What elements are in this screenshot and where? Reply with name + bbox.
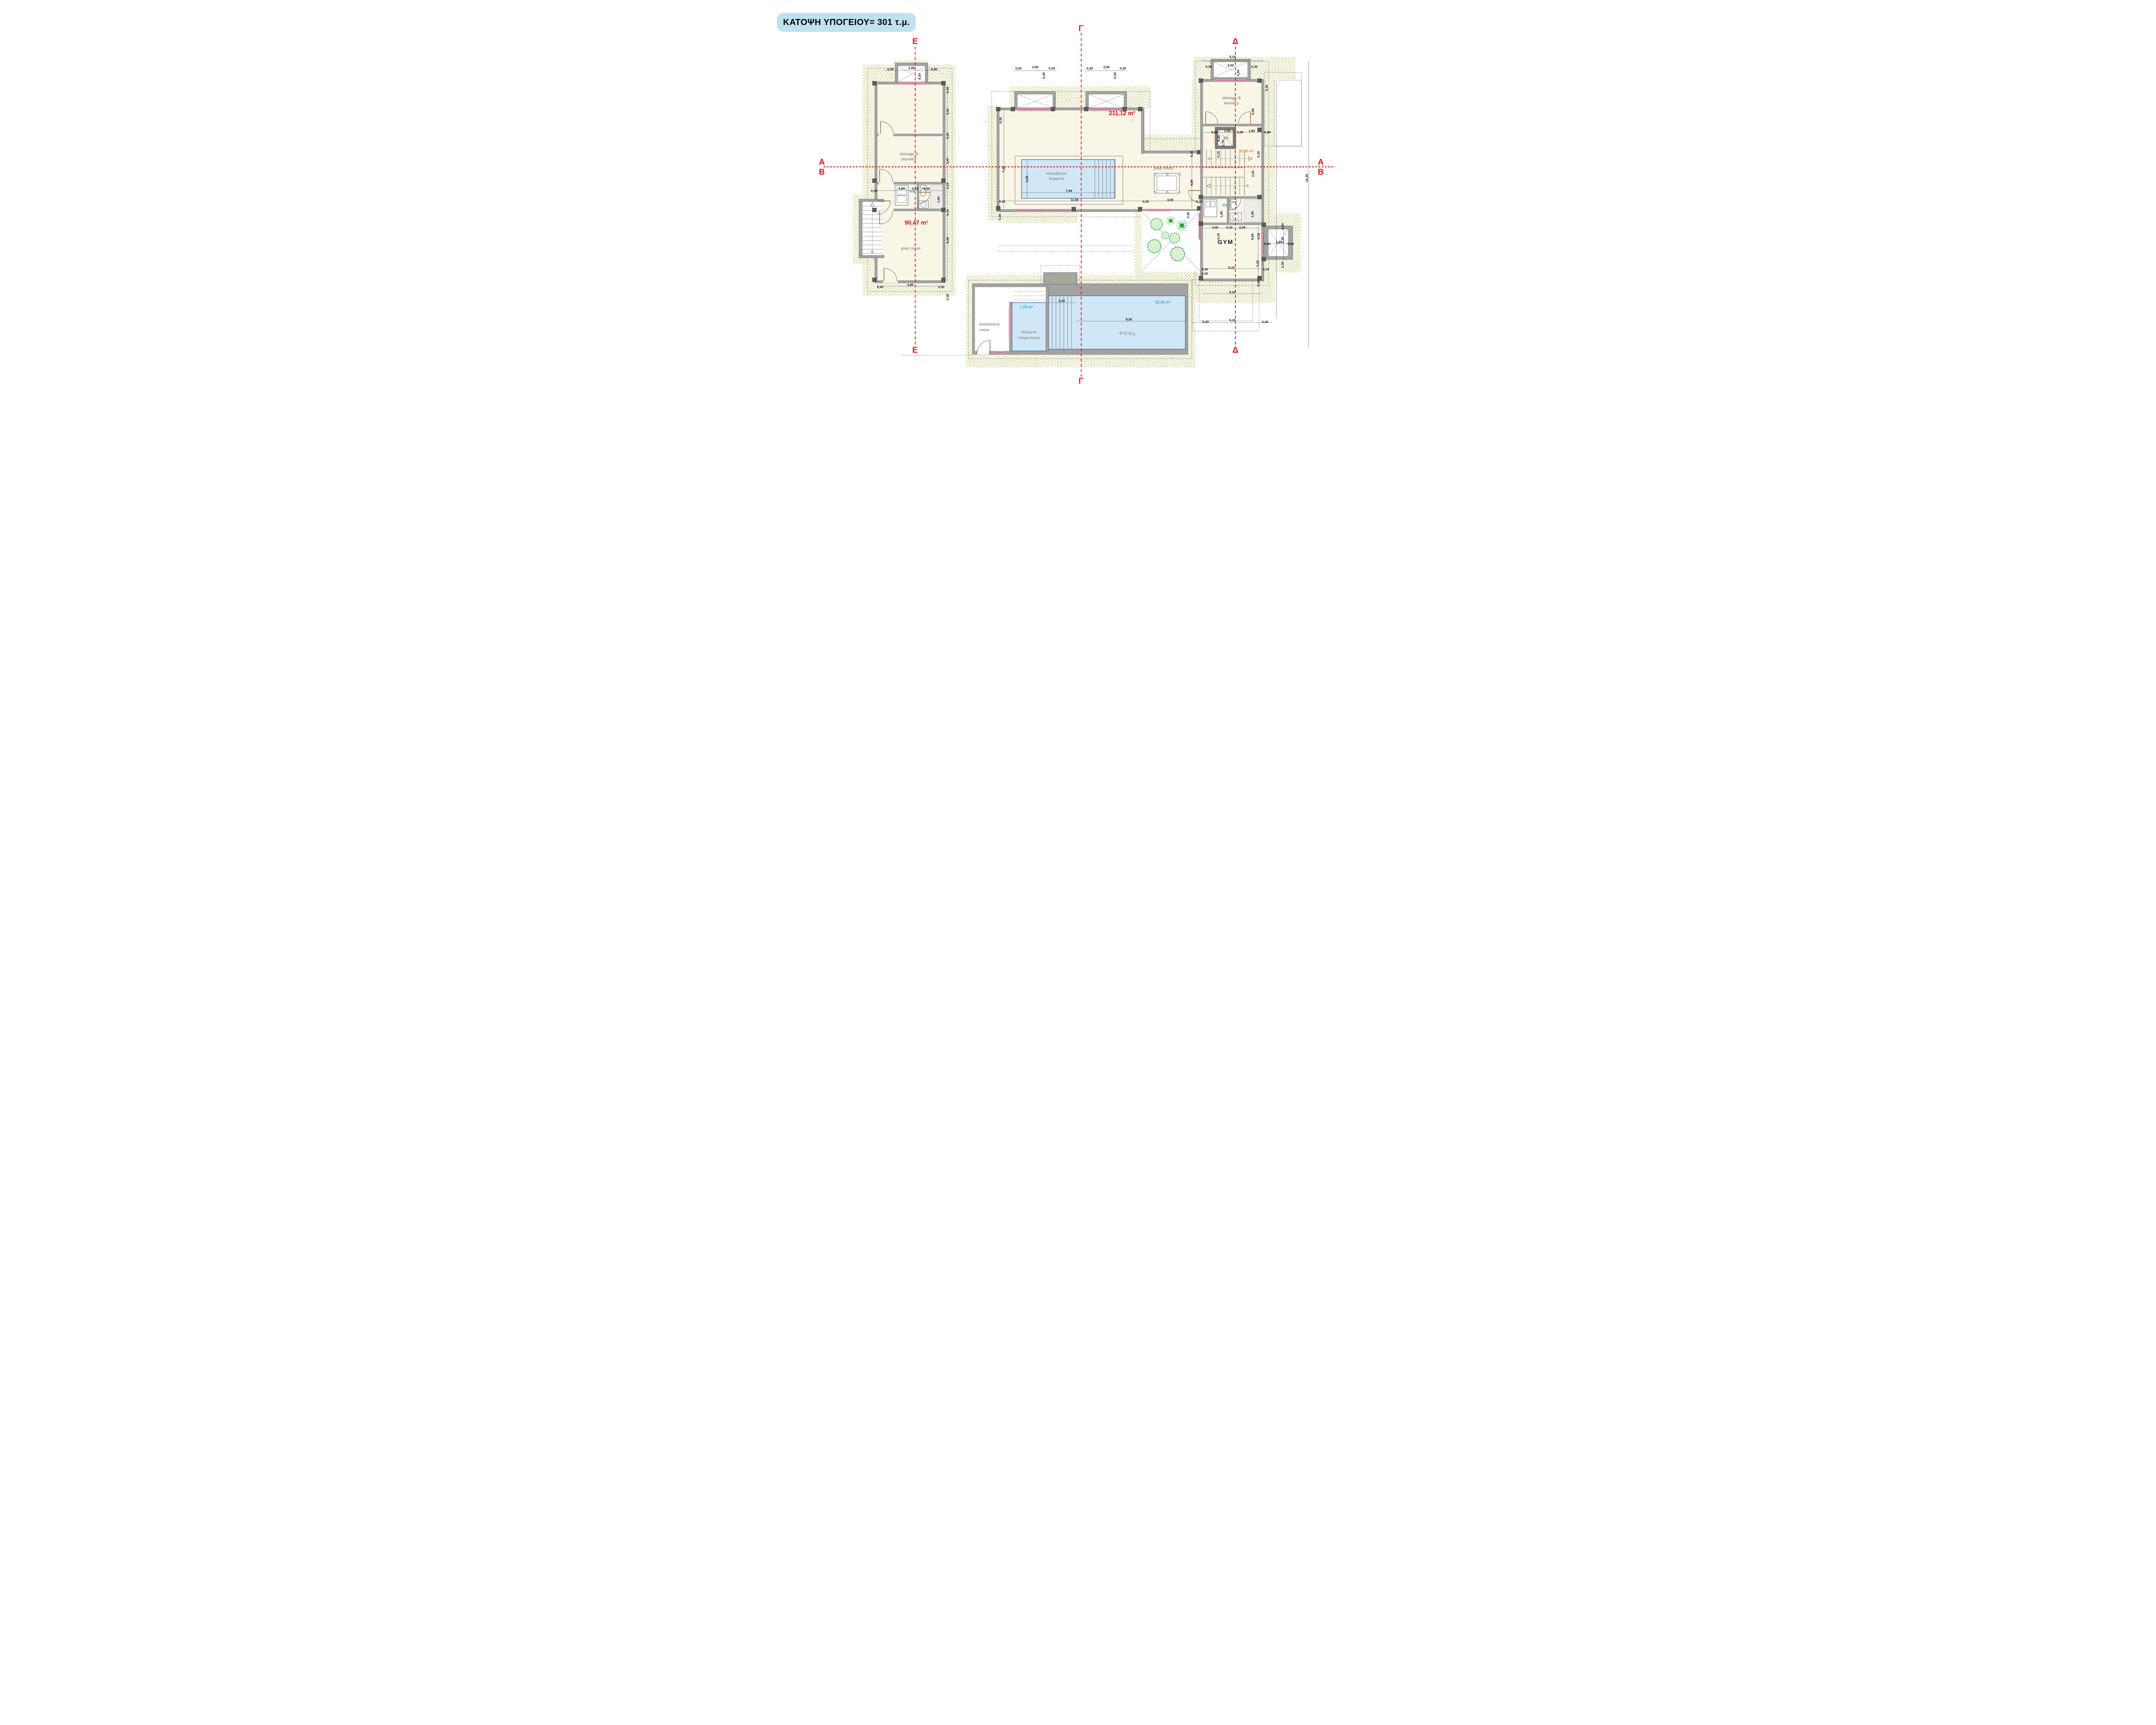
dimension-label: 0,30: [887, 67, 894, 71]
dimension-label: 0,30: [1251, 65, 1258, 69]
section-label-B-right: Β: [1318, 168, 1324, 177]
area-overflow-tank: 7,20 m²: [1019, 305, 1033, 309]
dimension-label: 1,75: [1221, 140, 1225, 147]
room-storage-laundry-right: storage &: [1222, 96, 1241, 100]
roomS-label: δεξαμενή: [1049, 177, 1064, 181]
dimension-label: 2,50: [1103, 65, 1110, 69]
dimension-label: 0,30: [1264, 130, 1271, 134]
dimension-label: 0,30: [1263, 267, 1269, 271]
dimension-label: 0,25: [1217, 135, 1221, 142]
overflow-tank: [1012, 303, 1046, 351]
dimension-label: 15,35: [1305, 174, 1309, 182]
dimension-label: 0,25: [1237, 130, 1244, 134]
dimension-label: 0,10: [1226, 225, 1233, 229]
pool-shaft-bump: [1044, 272, 1077, 285]
room-play-center: play room: [1153, 166, 1173, 171]
dimension-label: 2,10: [1059, 299, 1065, 303]
billiard-table: [1154, 173, 1180, 193]
dimension-label: 5,10: [1228, 266, 1235, 269]
dimension-label: 2,50: [909, 66, 915, 70]
dimension-label: 0,30: [871, 189, 877, 193]
blueprint-page: ΚΑΤΟΨΗ ΥΠΟΓΕΙΟΥ= 301 τ.μ.: [755, 0, 1401, 431]
dimension-label: 2,00: [1239, 225, 1246, 229]
dimension-label: 0,15: [1216, 151, 1220, 158]
dimension-label: 5,65: [1250, 234, 1254, 240]
toilet: [1231, 200, 1237, 202]
dimension-label: 11,55: [1071, 198, 1078, 202]
dimension-label: 0,15: [1216, 233, 1220, 240]
room-pool: POOL: [1119, 331, 1136, 336]
dimension-label: 0,30: [1264, 242, 1271, 246]
dimension-label: 0,30: [999, 117, 1003, 124]
section-label-E-bottom: Ε: [912, 346, 918, 355]
dimension-label: 0,30: [1281, 262, 1285, 268]
dimension-label: 5,10: [1229, 55, 1236, 59]
dimension-label: 0,10: [912, 187, 918, 191]
room-machinery: mashinery: [979, 322, 1000, 327]
machinery-room: [975, 287, 1009, 351]
dimension-label: 0,15: [1196, 200, 1203, 203]
exterior-staircase: [859, 199, 884, 258]
dimension-label: 1,80: [1219, 211, 1223, 218]
washer: [1230, 213, 1241, 221]
dimension-label: 0,30: [999, 200, 1006, 203]
dimension-label: 0,15: [1257, 151, 1260, 158]
section-label-D-top: Δ: [1232, 37, 1238, 46]
dimension-label: 9,20: [1126, 317, 1132, 321]
area-pool: 52,30 m²: [1155, 300, 1171, 304]
dimension-label: 3,62: [946, 109, 950, 115]
dimension-label: 0,30: [1206, 65, 1212, 69]
dimension-label: 0,30: [946, 87, 950, 94]
dimension-label: 3,00: [1025, 176, 1029, 182]
room-lift: lift: [1223, 136, 1228, 141]
dimension-label: 0,30: [998, 214, 1002, 220]
tree-icon: [1171, 247, 1185, 261]
dimension-label: 4,50: [1190, 180, 1194, 186]
roomS-label: υπερχειλισης: [1018, 336, 1040, 340]
dimension-label: 2,30: [1281, 237, 1285, 244]
dimension-label: 6,26: [946, 237, 950, 244]
dimension-label: 0,30: [1042, 72, 1046, 79]
tree-icon: [1166, 216, 1175, 225]
dimension-label: 7,30: [1002, 166, 1006, 173]
dimension-label: 5,10: [1229, 318, 1236, 322]
dimension-label: 0,30: [1049, 66, 1055, 70]
dimension-label: 0,30: [1186, 212, 1190, 219]
dimension-label: 1,80: [1249, 129, 1255, 133]
room-label: laundry: [902, 157, 917, 162]
dimension-label: 0,30: [1120, 66, 1126, 70]
title-box: ΚΑΤΟΨΗ ΥΠΟΓΕΙΟΥ= 301 τ.μ.: [777, 13, 916, 32]
dimension-label: 0,20: [1143, 200, 1149, 203]
dimension-label: 0,30: [1288, 242, 1294, 246]
room-storage-laundry-left: storage &: [899, 152, 918, 157]
psk-label-right: Ψ/Κ: [1222, 203, 1228, 207]
section-label-G-top: Γ: [1078, 24, 1084, 33]
dimension-label: 0,20: [1256, 260, 1260, 267]
area-stairs: 11,15 m²: [1239, 149, 1254, 153]
dimension-label: 4,95: [907, 283, 914, 287]
section-label-G-bottom: Γ: [1078, 377, 1084, 386]
room-label: laundry: [1224, 101, 1239, 106]
dimension-label: 0,15: [1257, 233, 1260, 240]
dimension-label: 0,30: [1113, 72, 1117, 79]
dimension-label: 3,00: [1212, 225, 1219, 229]
dimension-label: 0,30: [1190, 151, 1194, 157]
dimension-label: 2,00: [924, 187, 930, 191]
dimension-label: 0,30: [931, 67, 937, 71]
dimension-label: 1,80: [1250, 211, 1254, 218]
dimension-label: 0,30: [877, 285, 884, 289]
shower: [1244, 200, 1260, 222]
tree-icon: [1148, 240, 1161, 253]
dimension-label: 0,30: [1257, 280, 1260, 287]
room-swim-tank: κολυμβητική: [1046, 172, 1067, 175]
dimension-label: 0,30: [938, 285, 945, 289]
dimension-label: 4,55: [1167, 198, 1174, 202]
dimension-label: 0,30: [1202, 267, 1208, 271]
tree-icon: [1162, 232, 1169, 239]
courtyard: [1141, 209, 1201, 272]
floor-plan-canvas: ΕΕΓΓΔΔΑΒΑΒ90,47 m²211,12 m²11,15 m²7,20 …: [755, 0, 1401, 431]
dimension-label: 7,00: [1066, 189, 1072, 193]
dimension-label: 0,20: [1211, 130, 1218, 134]
page-title: ΚΑΤΟΨΗ ΥΠΟΓΕΙΟΥ= 301 τ.μ.: [783, 18, 910, 28]
indoor-swim-tank: [1015, 156, 1123, 204]
dimension-label: 0,15: [946, 183, 950, 189]
dimension-label: 0,20: [946, 133, 950, 139]
area-left-wing: 90,47 m²: [905, 219, 928, 226]
counter-sink: [1204, 200, 1217, 217]
area-main-basement: 211,12 m²: [1109, 110, 1135, 116]
dimension-label: 5,10: [1229, 290, 1236, 294]
dimension-label: 2,85: [899, 187, 905, 191]
dimension-label: 0,30: [1202, 272, 1208, 275]
dimension-label: 0,30: [1281, 223, 1285, 230]
right-wing: [1188, 59, 1293, 281]
section-label-A-right: Α: [1318, 158, 1324, 167]
dimension-label: 0,30: [946, 294, 950, 301]
dimension-label: 2,20: [1251, 171, 1255, 177]
dimension-label: 0,30: [1087, 66, 1093, 70]
dimension-label: 1,50: [1224, 129, 1231, 133]
dimension-label: 0,15: [946, 210, 950, 216]
dimension-label: 0,30: [1203, 320, 1209, 324]
room-play-left: play room: [901, 246, 920, 251]
dimension-label: 1,85: [937, 197, 940, 203]
dimension-label: 0,30: [1265, 85, 1269, 91]
section-label-E-top: Ε: [912, 37, 918, 46]
dimension-label: 0,30: [1015, 66, 1022, 70]
dimension-label: 0,30: [1262, 320, 1269, 324]
dimension-label: 3,47: [946, 158, 950, 164]
section-label-A-left: Α: [819, 158, 825, 167]
dimension-label: 2,50: [1032, 65, 1039, 69]
dimension-label: 0,30: [918, 73, 921, 80]
room-overflow-tank: δεξαμενη: [1021, 330, 1036, 334]
dimension-label: 0,30: [1236, 70, 1240, 76]
section-label-B-left: Β: [819, 168, 825, 177]
tree-icon: [1176, 220, 1188, 232]
section-label-D-bottom: Δ: [1232, 346, 1238, 355]
tree-icon: [1150, 218, 1162, 230]
dimension-label: 2,50: [1228, 63, 1234, 67]
tree-icon: [1169, 233, 1180, 243]
dimension-label: 5,45: [1251, 109, 1255, 115]
room-label: room: [979, 328, 990, 332]
